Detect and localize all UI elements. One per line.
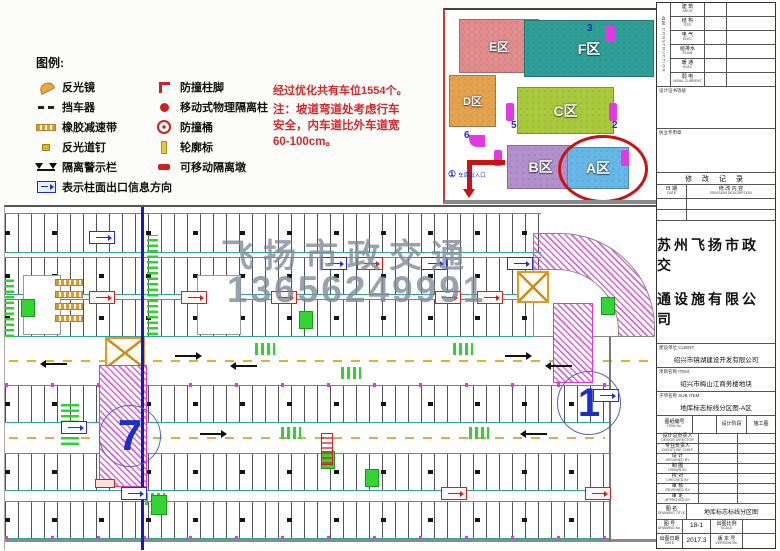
blue-direction-sign — [61, 421, 87, 434]
parking-floor-plan: 飞扬市政交通 13656249991 7 1 — [4, 205, 657, 550]
legend-item: 轮廓标 — [154, 139, 282, 155]
revision-header: 日 期DATE 修 改 内 容REVISION DESCRIPTION — [657, 185, 775, 199]
subitem-row: 子项名称 SUB ITEM 地库标志标线分区图-A区 — [657, 392, 775, 416]
legend-row: 反光道钉 轮廓标 — [36, 137, 282, 157]
staff-row: 审 定APPROVED BY — [657, 494, 775, 504]
staff-cell — [738, 464, 776, 473]
ramp-connector — [605, 26, 615, 42]
arrow-icon — [68, 427, 80, 429]
signoff-cell — [727, 59, 775, 72]
staff-cell — [738, 454, 776, 463]
revision-row — [657, 210, 775, 221]
legend-item: 反光道钉 — [36, 139, 154, 155]
arrow-icon — [188, 297, 200, 299]
date-version-row: 出图日期DATE 2017.3 版 本 号VERSION No. — [657, 534, 775, 548]
ramp-number-6: 6 — [464, 130, 470, 141]
parking-row-band — [5, 385, 609, 423]
drawing-title-row: 图 名DRAWING TITLE 地库标志标线分区图 — [657, 504, 775, 520]
legend-row: 橡胶减速带 防撞桶 — [36, 117, 282, 137]
staff-cell — [699, 484, 738, 493]
staff-cell — [699, 474, 738, 483]
exit-info-direction-icon — [36, 180, 56, 194]
plan-right-wall — [609, 332, 611, 542]
certificate-box: 设计证书等级 — [657, 87, 775, 129]
signoff-cell — [705, 31, 727, 44]
legend-item: 防撞桶 — [154, 119, 282, 135]
staff-cell — [699, 444, 738, 453]
issue-date-value: 2017.3 — [687, 538, 707, 545]
crosswalk — [281, 427, 301, 439]
wheel-stop-icon — [36, 100, 56, 114]
signoff-row: 弱 电WEAK CURRENT — [671, 73, 775, 86]
signoff-cell — [727, 73, 775, 86]
entrance-number: ① — [448, 169, 456, 180]
barrier-post-icon — [154, 100, 174, 114]
arrow-icon — [128, 493, 140, 495]
arrow-icon — [514, 263, 526, 265]
arrow-icon — [96, 237, 108, 239]
seal-box: 执业专用章 — [657, 129, 775, 173]
ramp-number-3: 3 — [587, 23, 593, 34]
arrow-icon — [96, 297, 108, 299]
company-line: 苏州飞扬市政交 — [657, 235, 775, 275]
traffic-arrow — [525, 433, 547, 435]
signoff-cell — [727, 31, 775, 44]
legend-row: 隔离警示栏 可移动隔离墩 — [36, 157, 282, 177]
note-line: 60-100cm。 — [273, 134, 443, 150]
crash-barrel-icon — [154, 120, 174, 134]
signoff-row: 给排水PLUM — [671, 45, 775, 59]
legend-item: 表示柱面出口信息方向 — [36, 179, 172, 195]
note-line: 经过优化共有车位1554个。 — [273, 82, 443, 98]
blue-direction-sign — [89, 231, 115, 244]
staff-cell — [699, 454, 738, 463]
green-hatch-edge — [5, 279, 14, 337]
signoff-cell — [705, 73, 727, 86]
title-block: 会签 CONSTRUCTION 建 筑ARCH 结 构STR 电 气ELEC 给… — [656, 2, 776, 549]
signoff-cell — [727, 3, 775, 16]
zone-number-1: 1 — [557, 371, 621, 435]
optimization-note: 经过优化共有车位1554个。 注：坡道弯道处考虑行车 安全，内车道比外车道宽 6… — [273, 82, 443, 150]
version-value-cell — [743, 534, 775, 548]
warning-fence-icon — [36, 160, 56, 174]
signoff-row: 结 构STR — [671, 17, 775, 31]
crosswalk — [453, 343, 473, 355]
traffic-arrow — [45, 363, 67, 365]
signoff-cell — [705, 17, 727, 30]
delineator-icon — [154, 140, 174, 154]
signoff-cell — [705, 45, 727, 58]
drawing-number-value: 18-1 — [690, 523, 703, 530]
signoff-table: 会签 CONSTRUCTION 建 筑ARCH 结 构STR 电 气ELEC 给… — [657, 3, 775, 87]
crosswalk — [341, 367, 361, 379]
traffic-arrow — [550, 365, 572, 367]
revision-title: 修 改 记 录 — [657, 173, 775, 185]
legend-item: 移动式物理隔离柱 — [154, 99, 282, 115]
column-dot-row — [5, 383, 609, 387]
staff-cell — [699, 494, 738, 503]
entrance-arrow — [467, 160, 505, 165]
road-stud-icon — [36, 140, 56, 154]
sheet-number-cell — [693, 416, 717, 433]
signoff-cell — [705, 3, 727, 16]
drive-aisle — [5, 423, 609, 451]
note-line: 安全，内车道比外车道宽 — [273, 118, 443, 134]
blue-direction-sign — [121, 487, 147, 500]
traffic-arrow — [175, 355, 197, 357]
note-line: 注：坡道弯道处考虑行车 — [273, 102, 443, 118]
staff-cell — [738, 484, 776, 493]
ramp-connector — [506, 103, 514, 121]
red-direction-sign — [181, 291, 207, 304]
red-hatch-marker — [321, 433, 333, 465]
ramp-connector — [621, 150, 629, 166]
green-hatch-strip — [147, 235, 158, 335]
ramp-connector — [469, 135, 485, 147]
project-row: 项目名称 ITEM 绍兴市梅山江商务楼地块 — [657, 368, 775, 392]
sheet-number-grid: 图纸编号ITEM No. 设计阶段 施工图 — [657, 416, 775, 434]
staff-cell — [738, 444, 776, 453]
red-direction-sign — [585, 487, 611, 500]
drawing-title-value: 地库标志标线分区图 — [687, 504, 775, 519]
signoff-row: 暖 通HVAC — [671, 59, 775, 73]
parking-row-band — [5, 501, 609, 539]
arrow-icon — [448, 493, 460, 495]
plan-bottom-wall — [5, 539, 657, 542]
zone-a-highlight-circle — [558, 135, 648, 203]
signoff-cell — [727, 17, 775, 30]
company-line: 通设施有限公司 — [657, 289, 775, 329]
key-plan-map: E区 F区 D区 C区 B区 A区 3 5 2 6 ① 车库出入口 — [443, 8, 660, 204]
exit-marker — [365, 469, 379, 487]
speed-bump — [55, 315, 83, 322]
legend-item: 隔离警示栏 — [36, 159, 154, 175]
zone-c: C区 — [517, 87, 614, 134]
blue-direction-sign — [507, 257, 533, 270]
exit-marker — [151, 495, 167, 515]
ramp-number-2: 2 — [612, 120, 618, 131]
mirror-icon — [36, 80, 56, 94]
crossed-box-right — [517, 271, 549, 303]
signoff-cell — [727, 45, 775, 58]
scale-value-cell — [743, 520, 775, 533]
legend-title: 图例: — [36, 54, 282, 71]
exit-marker — [601, 297, 615, 315]
signoff-vertical-label: 会签 CONSTRUCTION — [657, 3, 671, 86]
bollard-base-icon — [154, 80, 174, 94]
crosswalk — [469, 427, 489, 439]
speed-bump — [55, 303, 83, 310]
red-direction-sign — [89, 291, 115, 304]
staff-cell — [738, 474, 776, 483]
arrow-icon — [592, 493, 604, 495]
signoff-cell — [705, 59, 727, 72]
legend-item: 防撞柱脚 — [154, 79, 282, 95]
legend-row: 反光镜 防撞柱脚 — [36, 77, 282, 97]
speed-bump-icon — [36, 120, 56, 134]
revision-row — [657, 199, 775, 210]
entrance-label: ① 车库出入口 — [448, 169, 486, 180]
signoff-row: 电 气ELEC — [671, 31, 775, 45]
signoff-rows: 建 筑ARCH 结 构STR 电 气ELEC 给排水PLUM 暖 通HVAC 弱… — [671, 3, 775, 86]
client-row: 建设单位 CLIENT 绍兴市镜湖建设开发有限公司 — [657, 344, 775, 368]
crosswalk — [255, 343, 275, 355]
exit-marker — [21, 299, 35, 317]
signoff-row: 建 筑ARCH — [671, 3, 775, 17]
staff-cell — [699, 464, 738, 473]
traffic-arrow — [505, 355, 527, 357]
ramp-connector — [609, 103, 617, 121]
exit-marker — [299, 311, 313, 329]
zone-number-7: 7 — [99, 405, 161, 467]
company-name: 苏州飞扬市政交 通设施有限公司 — [657, 221, 775, 344]
legend-item: 可移动隔离墩 — [154, 159, 282, 175]
entrance-text: 车库出入口 — [458, 171, 486, 179]
watermark-phone: 13656249991 — [227, 269, 486, 311]
zone-d: D区 — [449, 75, 496, 127]
legend-item: 橡胶减速带 — [36, 119, 154, 135]
legend-row: 表示柱面出口信息方向 — [36, 177, 282, 197]
barrier-block-icon — [154, 160, 174, 174]
speed-bump — [55, 279, 83, 286]
traffic-arrow — [235, 365, 257, 367]
red-direction-sign — [441, 487, 467, 500]
legend-item: 反光镜 — [36, 79, 154, 95]
staff-cell — [699, 434, 738, 443]
speed-bump — [55, 291, 83, 298]
legend-item: 挡车器 — [36, 99, 154, 115]
curved-ramp — [533, 233, 655, 337]
staff-cell — [738, 434, 776, 443]
ramp-number-5: 5 — [511, 120, 517, 131]
legend-row: 挡车器 移动式物理隔离柱 — [36, 97, 282, 117]
ramp-end-marker — [95, 479, 115, 488]
traffic-arrow — [200, 433, 222, 435]
legend: 图例: 反光镜 防撞柱脚 挡车器 移动式物理隔离柱 橡胶减速带 防撞桶 反光道钉… — [36, 54, 282, 197]
staff-cell — [738, 494, 776, 503]
drawing-number-row: 图 号DRAWING No. 18-1 出图比例SCALE — [657, 520, 775, 534]
